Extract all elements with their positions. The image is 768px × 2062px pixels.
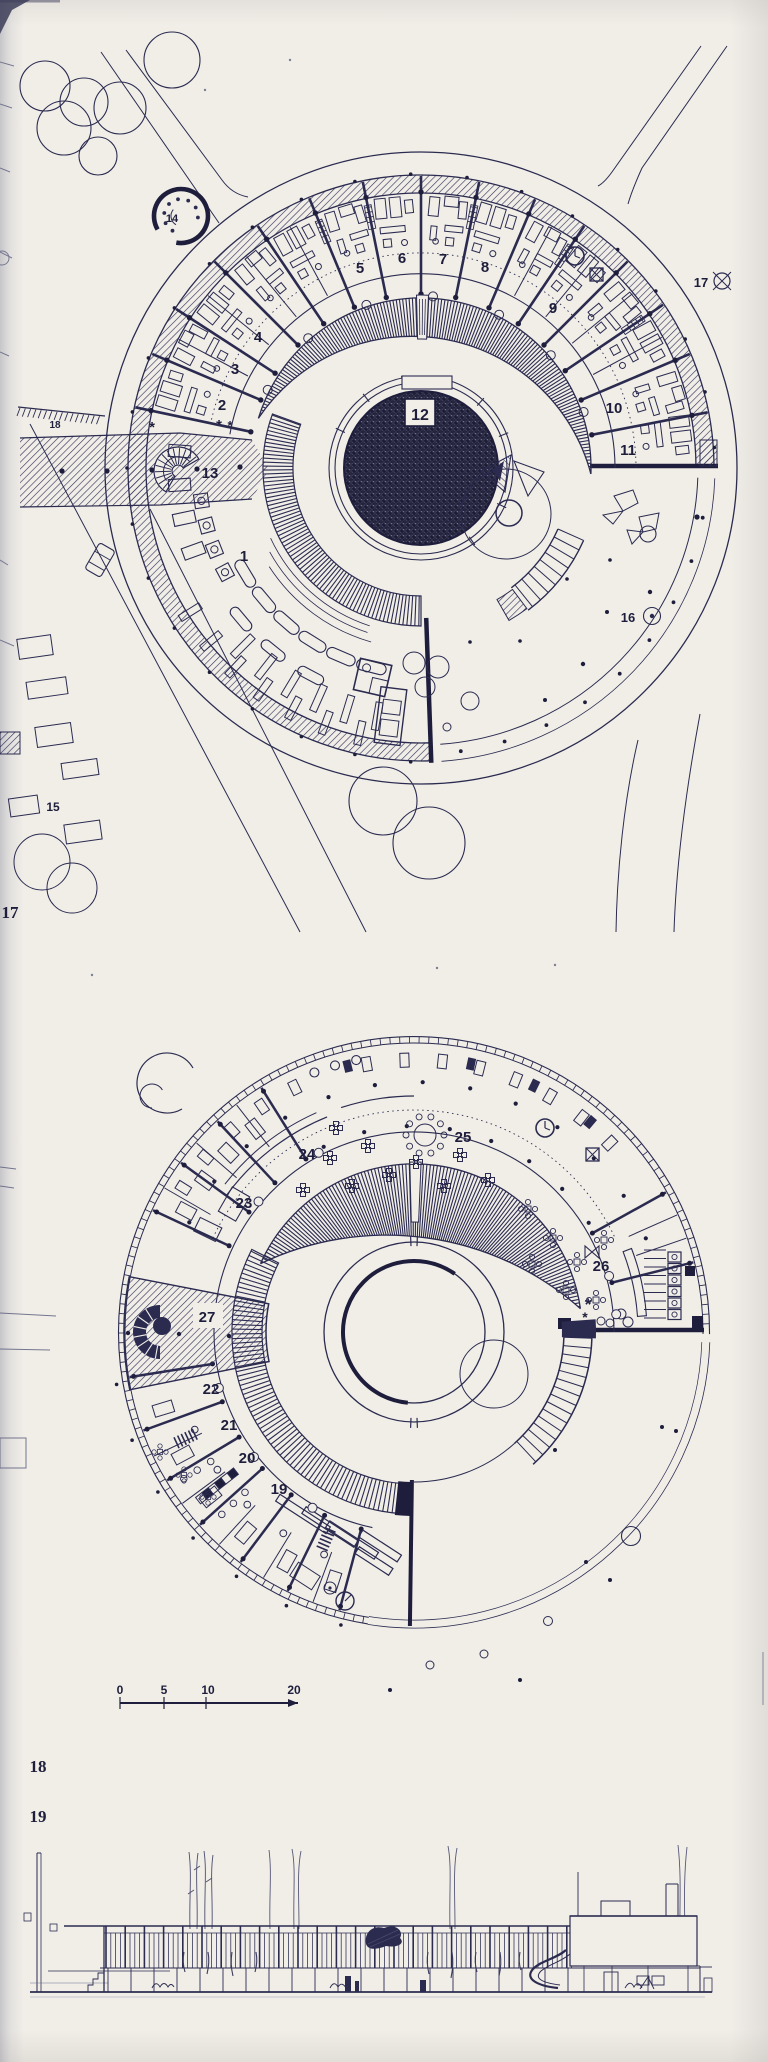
svg-text:22: 22 (203, 1381, 220, 1398)
svg-text:20: 20 (239, 1450, 256, 1467)
svg-text:9: 9 (549, 300, 557, 317)
svg-text:18: 18 (30, 1757, 47, 1776)
svg-text:13: 13 (202, 465, 219, 482)
svg-text:*: * (582, 1309, 588, 1325)
svg-text:25: 25 (455, 1129, 472, 1146)
svg-text:27: 27 (199, 1309, 216, 1326)
svg-text:24: 24 (299, 1146, 316, 1163)
svg-text:7: 7 (439, 251, 447, 268)
svg-text:10: 10 (201, 1683, 215, 1697)
svg-text:21: 21 (221, 1417, 238, 1434)
svg-text:2: 2 (218, 397, 226, 414)
svg-text:5: 5 (356, 260, 364, 277)
svg-text:16: 16 (621, 610, 635, 625)
svg-text:0: 0 (117, 1683, 124, 1697)
svg-text:20: 20 (287, 1683, 301, 1697)
svg-text:17: 17 (2, 903, 20, 922)
svg-text:19: 19 (271, 1481, 288, 1498)
svg-text:11: 11 (620, 442, 636, 459)
svg-text:26: 26 (593, 1258, 610, 1275)
svg-text:1: 1 (240, 548, 248, 565)
svg-text:19: 19 (30, 1807, 47, 1826)
svg-text:5: 5 (161, 1683, 168, 1697)
svg-text:18: 18 (49, 420, 61, 431)
svg-text:4: 4 (254, 329, 263, 346)
svg-text:3: 3 (231, 361, 239, 378)
svg-text:17: 17 (694, 275, 708, 290)
svg-text:14: 14 (166, 213, 179, 225)
svg-text:10: 10 (606, 400, 623, 417)
svg-text:12: 12 (411, 407, 429, 424)
svg-text:6: 6 (398, 250, 406, 267)
svg-text:8: 8 (481, 259, 489, 276)
svg-text:23: 23 (236, 1195, 253, 1212)
svg-text:15: 15 (46, 800, 60, 814)
